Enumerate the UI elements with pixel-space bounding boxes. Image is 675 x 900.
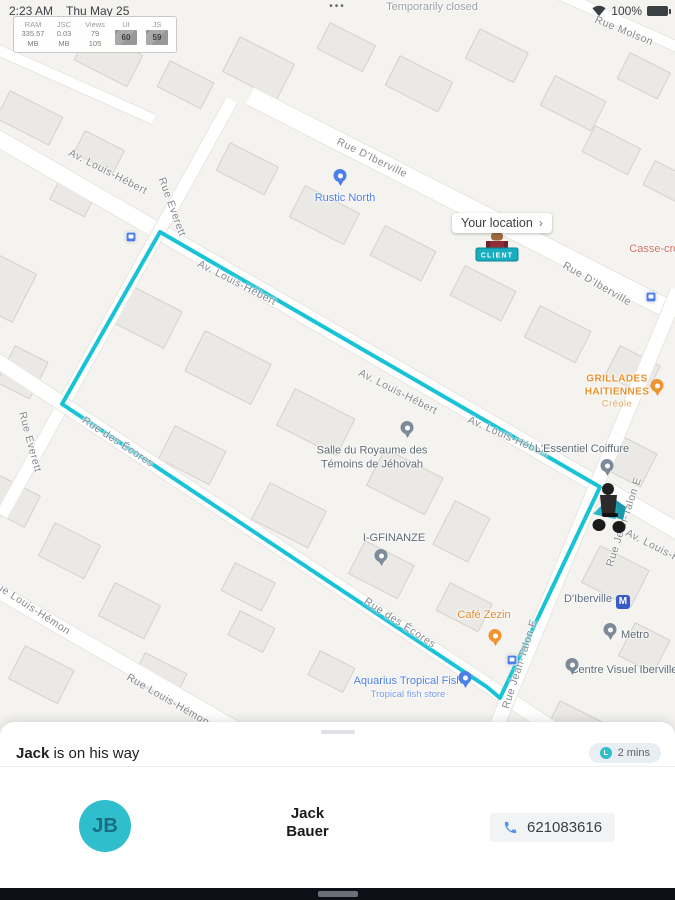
perf-unit: MB	[52, 39, 76, 49]
your-location-label[interactable]: Your location›	[452, 213, 552, 233]
bottom-sheet: Jack is on his way 2 mins JB Jack Bauer …	[0, 722, 675, 888]
building	[156, 60, 214, 109]
sheet-title: Jack is on his way	[16, 745, 139, 762]
wifi-icon	[592, 5, 606, 17]
building	[220, 562, 276, 611]
poi-label[interactable]: Salle du Royaume desTémoins de Jéhovah	[317, 444, 428, 472]
perf-value: 335.57	[21, 29, 45, 39]
building	[98, 582, 162, 639]
poi-pin-icon[interactable]	[566, 658, 579, 677]
battery-icon	[647, 6, 668, 16]
perf-label: JSC	[52, 20, 76, 29]
perf-value: 0.03	[52, 29, 76, 39]
eta-text: 2 mins	[618, 747, 650, 759]
drag-handle[interactable]	[321, 730, 355, 734]
metro-station-icon[interactable]: M	[616, 595, 630, 609]
driver-row: JB Jack Bauer 621083616 Cancel	[0, 772, 675, 882]
driver-name: Jack Bauer	[240, 805, 375, 840]
transit-stop-icon[interactable]	[507, 655, 518, 666]
client-tag: CLIENT	[476, 248, 518, 261]
driver-last-name: Bauer	[240, 823, 375, 841]
building	[38, 522, 102, 579]
poi-label[interactable]: Casse-croûte	[629, 243, 675, 257]
perf-column: RAM335.57MB	[21, 20, 45, 49]
poi-pin-icon[interactable]	[459, 671, 472, 690]
phone-icon	[503, 820, 518, 835]
poi-label[interactable]: Café Zezin	[457, 609, 510, 623]
perf-value-box: 59	[146, 30, 168, 45]
call-driver-button[interactable]: 621083616	[490, 813, 615, 842]
eta-badge: 2 mins	[589, 743, 661, 763]
scooter-icon	[588, 480, 632, 534]
building	[642, 160, 675, 204]
poi-pin-icon[interactable]	[604, 623, 617, 642]
building	[616, 52, 671, 100]
perf-column: UI60	[114, 20, 138, 45]
perf-label: RAM	[21, 20, 45, 29]
building	[307, 650, 355, 693]
transit-stop-icon[interactable]	[646, 292, 657, 303]
building	[370, 225, 437, 282]
perf-label: Views	[83, 20, 107, 29]
street-label: Rue des Écores	[362, 595, 438, 650]
street-label: Rue des Écores	[80, 414, 156, 469]
perf-unit: MB	[21, 39, 45, 49]
your-location-text: Your location	[461, 216, 533, 230]
building	[450, 265, 517, 322]
building	[581, 125, 641, 175]
driver-avatar: JB	[79, 800, 131, 852]
building	[432, 500, 490, 563]
building	[540, 75, 607, 132]
driver-phone-number: 621083616	[527, 819, 602, 836]
poi-pin-icon[interactable]	[489, 629, 502, 648]
clock-icon	[600, 747, 612, 759]
perf-column: Views79105	[83, 20, 107, 49]
building	[0, 255, 37, 323]
poi-label[interactable]: GRILLADESHAITIENNESCréole	[585, 374, 650, 411]
divider	[0, 766, 675, 767]
home-indicator[interactable]	[318, 891, 358, 897]
poi-pin-icon[interactable]	[334, 169, 347, 188]
poi-label[interactable]: Rustic North	[315, 192, 376, 206]
perf-monitor: RAM335.57MBJSC0.03MBViews79105UI60JS59	[13, 16, 177, 53]
navigation-bar	[0, 888, 675, 900]
perf-column: JS59	[145, 20, 169, 45]
title-rest: is on his way	[49, 745, 139, 762]
battery-percent: 100%	[611, 4, 642, 18]
chevron-right-icon: ›	[539, 216, 543, 230]
poi-label[interactable]: Metro	[621, 629, 649, 643]
driver-first-name: Jack	[240, 805, 375, 823]
poi-sublabel: Créole	[585, 399, 650, 411]
perf-label: UI	[114, 20, 138, 29]
poi-label[interactable]: Centre Visuel Iberville	[571, 664, 675, 678]
building	[524, 305, 592, 363]
building	[227, 610, 275, 653]
building	[8, 645, 75, 704]
perf-value: 79	[83, 29, 107, 39]
transit-stop-icon[interactable]	[126, 232, 137, 243]
poi-sublabel: Tropical fish store	[354, 689, 463, 701]
driver-first-name-inline: Jack	[16, 745, 49, 762]
building	[215, 142, 279, 195]
poi-pin-icon[interactable]	[651, 379, 664, 398]
poi-label[interactable]: L'Essentiel Coiffure	[535, 443, 629, 457]
perf-label: JS	[145, 20, 169, 29]
poi-label[interactable]: D'IbervilleM	[564, 593, 630, 609]
perf-value-box: 60	[115, 30, 137, 45]
poi-pin-icon[interactable]	[375, 549, 388, 568]
svg-text:CLIENT: CLIENT	[481, 253, 513, 260]
poi-label[interactable]: I-GFINANZE	[363, 532, 425, 546]
notification-dots: •••	[329, 1, 346, 12]
building	[465, 28, 529, 83]
poi-pin-icon[interactable]	[601, 459, 614, 478]
poi-label[interactable]: Aquarius Tropical FishTropical fish stor…	[354, 675, 463, 701]
building	[316, 22, 376, 72]
perf-unit: 105	[83, 39, 107, 49]
building	[184, 330, 272, 405]
driver-scooter-marker[interactable]	[588, 480, 632, 539]
poi-pin-icon[interactable]	[401, 421, 414, 440]
perf-column: JSC0.03MB	[52, 20, 76, 49]
building	[435, 582, 492, 632]
building	[385, 55, 454, 113]
